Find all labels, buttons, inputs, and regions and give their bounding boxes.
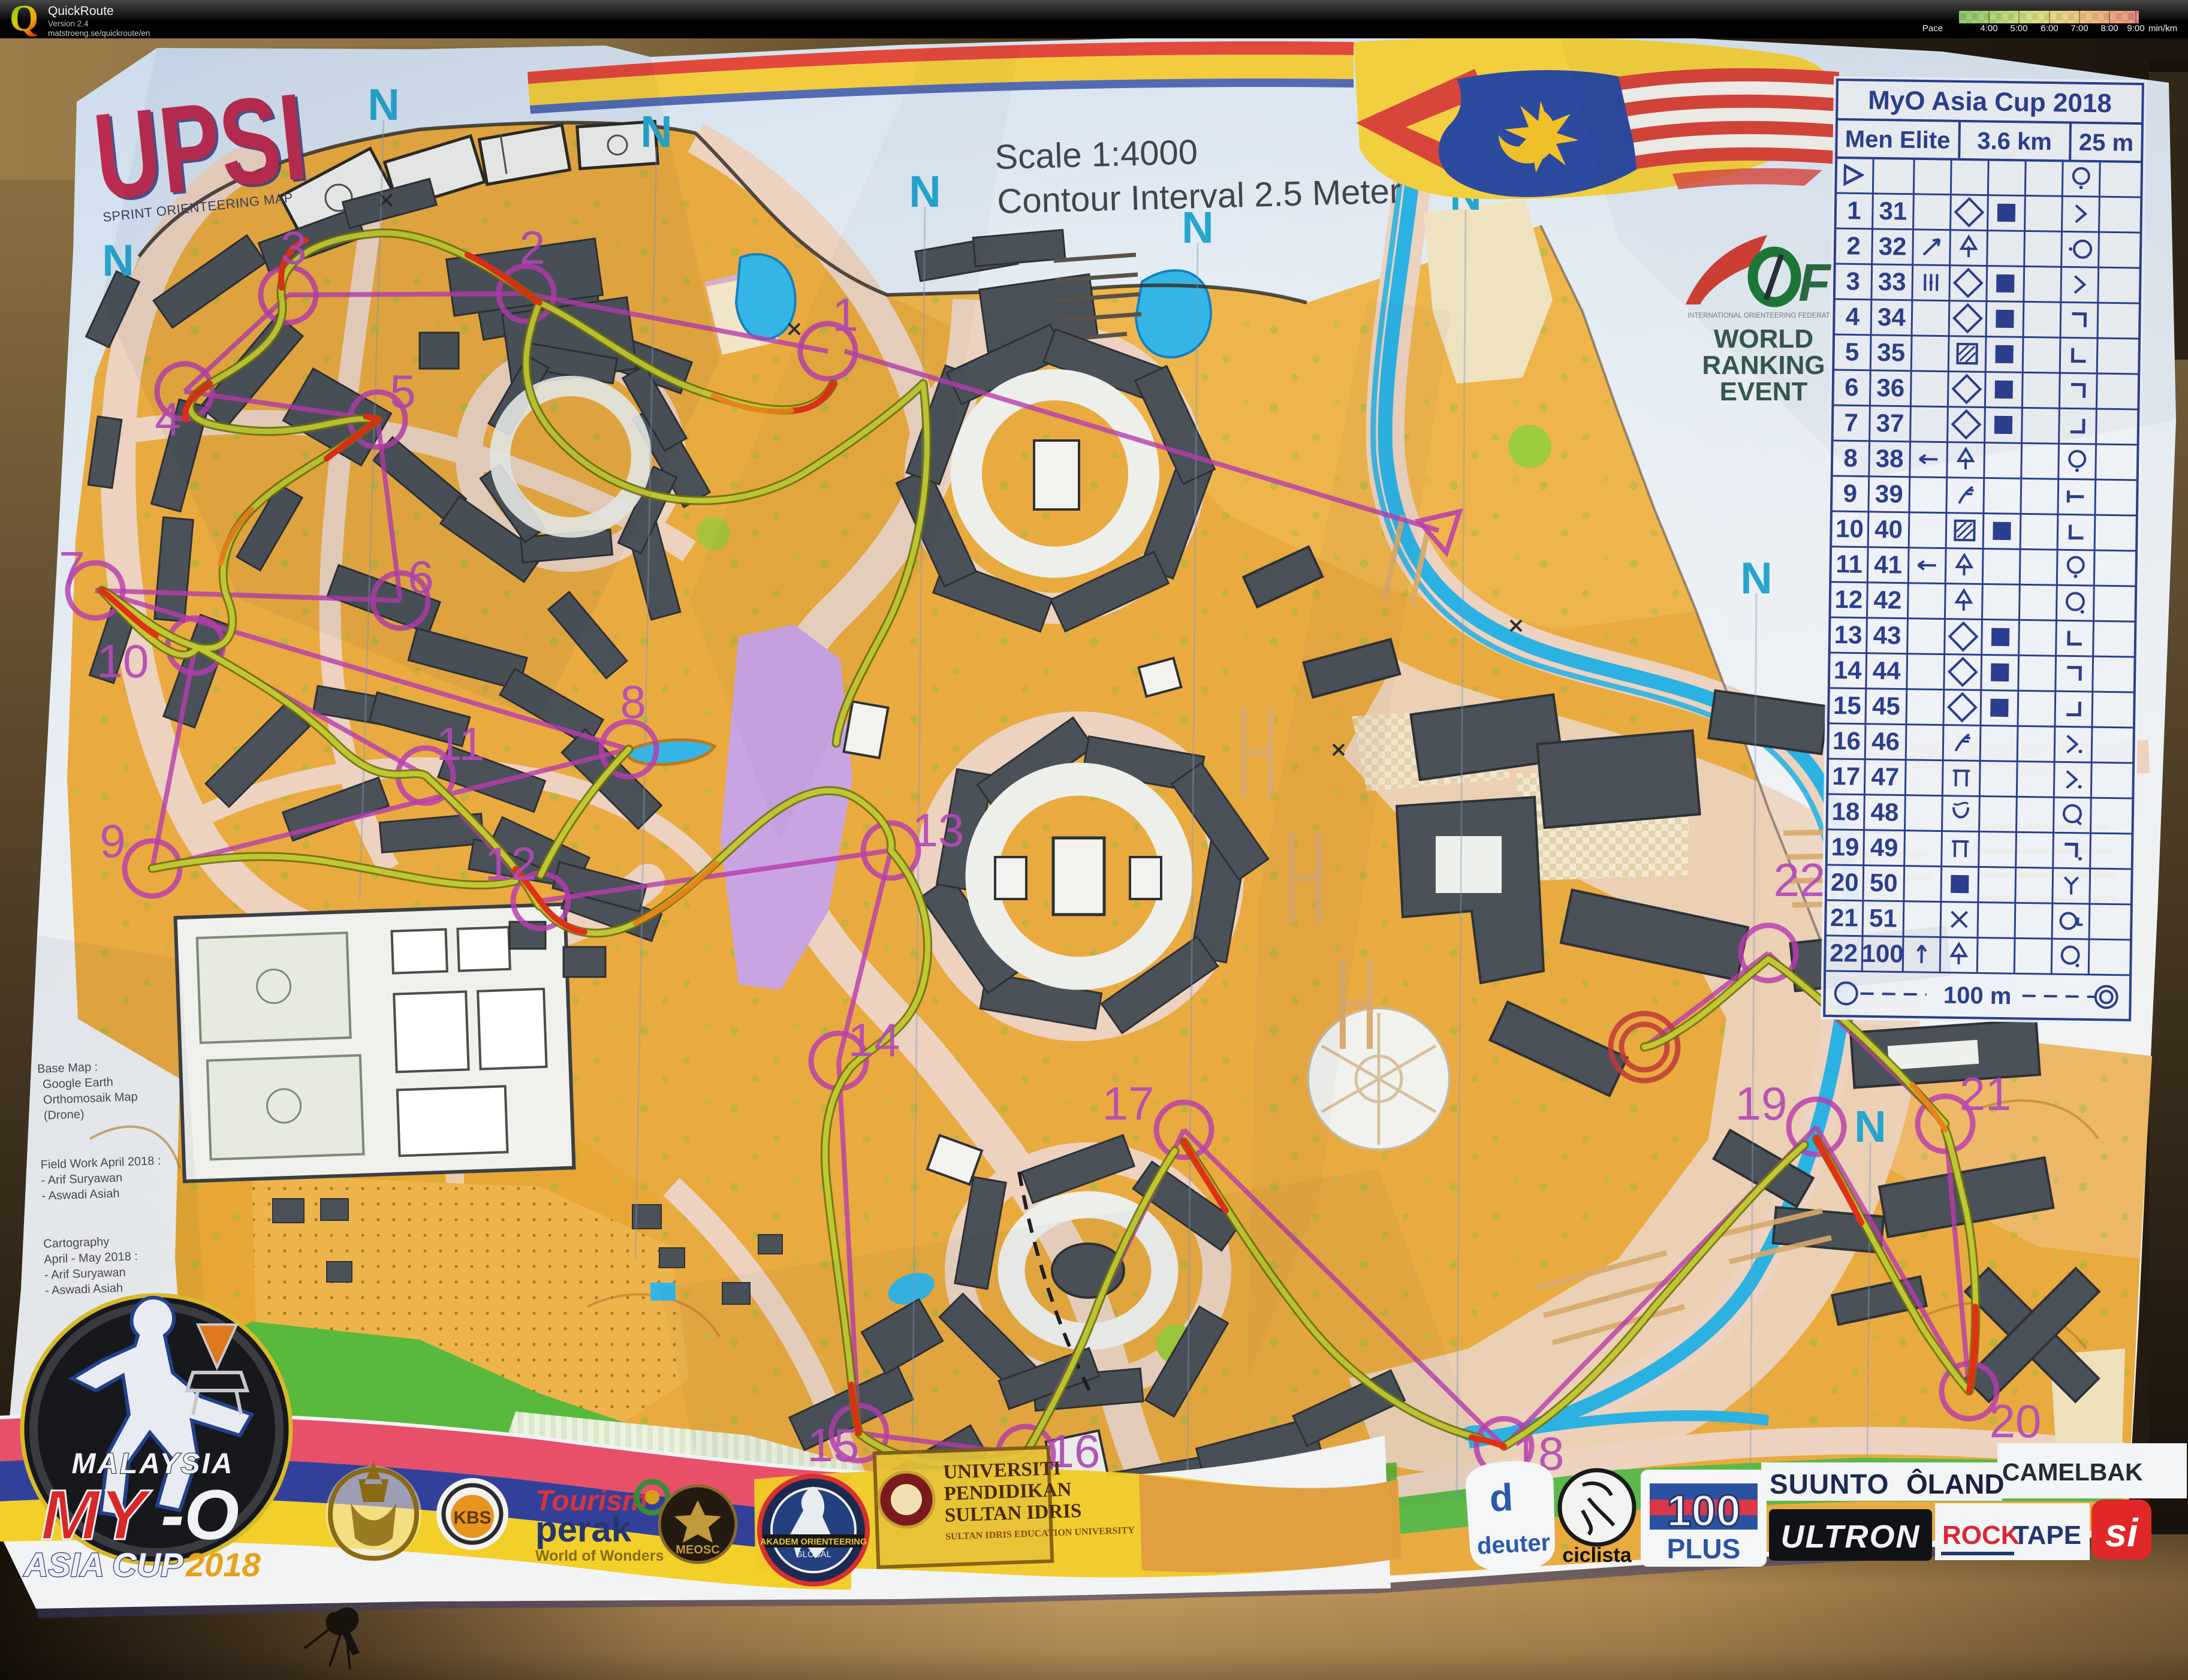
svg-text:GLOBAL: GLOBAL (795, 1549, 831, 1560)
svg-text:100: 100 (1861, 939, 1904, 968)
svg-text:13: 13 (912, 804, 965, 856)
svg-text:20: 20 (1990, 1395, 2042, 1447)
svg-text:11: 11 (1836, 550, 1862, 578)
svg-text:matstroeng.se/quickroute/en: matstroeng.se/quickroute/en (48, 29, 150, 38)
svg-text:21: 21 (1830, 903, 1858, 932)
svg-text:19: 19 (1735, 1077, 1788, 1130)
svg-text:World of Wonders: World of Wonders (535, 1548, 664, 1564)
svg-text:49: 49 (1870, 833, 1898, 862)
svg-text:ROCK: ROCK (1942, 1521, 2020, 1550)
svg-text:22: 22 (1830, 939, 1858, 967)
svg-text:KBS: KBS (453, 1508, 491, 1528)
svg-text:41: 41 (1874, 550, 1902, 579)
svg-text:9: 9 (1843, 479, 1857, 507)
svg-text:Q: Q (10, 0, 38, 39)
svg-text:min/km: min/km (2148, 23, 2177, 34)
svg-text:2018: 2018 (185, 1546, 261, 1584)
svg-text:TAPE: TAPE (2013, 1521, 2081, 1550)
svg-text:N: N (1854, 1102, 1886, 1151)
svg-text:39: 39 (1875, 479, 1903, 508)
svg-text:10: 10 (97, 635, 149, 687)
svg-text:MEOSC: MEOSC (676, 1543, 719, 1557)
svg-text:8:00: 8:00 (2100, 23, 2118, 34)
svg-text:46: 46 (1871, 727, 1900, 756)
svg-text:MY: MY (41, 1476, 152, 1555)
svg-text:8: 8 (620, 675, 646, 728)
svg-text:21: 21 (1960, 1067, 2012, 1120)
svg-text:4:00: 4:00 (1980, 23, 1997, 34)
svg-text:100: 100 (1666, 1486, 1740, 1536)
svg-text:51: 51 (1869, 904, 1897, 933)
svg-text:47: 47 (1871, 762, 1899, 791)
svg-text:AKADEM ORIENTEERING: AKADEM ORIENTEERING (760, 1537, 867, 1547)
svg-text:7:00: 7:00 (2071, 23, 2088, 34)
svg-text:Scale 1:4000: Scale 1:4000 (994, 132, 1198, 177)
svg-text:9:00: 9:00 (2127, 23, 2144, 34)
svg-text:48: 48 (1870, 798, 1898, 827)
svg-text:ULTRON: ULTRON (1781, 1519, 1921, 1555)
svg-text:9: 9 (100, 815, 125, 867)
svg-text:16: 16 (1833, 726, 1861, 755)
svg-text:6:00: 6:00 (2041, 23, 2058, 34)
svg-text:20: 20 (1831, 868, 1859, 897)
svg-text:10: 10 (1836, 514, 1864, 543)
svg-text:N: N (1740, 553, 1772, 603)
svg-text:7: 7 (59, 542, 85, 595)
svg-text:N: N (1182, 203, 1213, 252)
svg-text:ÔLAND: ÔLAND (1906, 1468, 2005, 1500)
svg-text:SUUNTO: SUUNTO (1770, 1468, 1889, 1500)
svg-text:42: 42 (1873, 586, 1901, 614)
svg-text:-O: -O (161, 1476, 239, 1555)
svg-text:19: 19 (1831, 833, 1859, 861)
svg-text:22: 22 (1774, 853, 1826, 906)
svg-text:45: 45 (1872, 692, 1900, 720)
svg-text:18: 18 (1831, 797, 1860, 826)
svg-text:Version 2.4: Version 2.4 (48, 19, 89, 28)
svg-text:QuickRoute: QuickRoute (48, 4, 114, 18)
svg-text:PLUS: PLUS (1667, 1533, 1741, 1564)
svg-text:ASIA CUP: ASIA CUP (23, 1546, 183, 1584)
svg-text:CAMELBAK: CAMELBAK (2002, 1458, 2143, 1486)
svg-text:44: 44 (1873, 656, 1901, 685)
svg-text:ciclista: ciclista (1562, 1544, 1632, 1567)
svg-text:perak: perak (535, 1509, 632, 1549)
svg-text:deuter: deuter (1476, 1530, 1551, 1560)
svg-text:14: 14 (1834, 656, 1862, 684)
svg-text:5:00: 5:00 (2010, 23, 2027, 34)
svg-text:14: 14 (848, 1014, 900, 1066)
svg-text:12: 12 (1834, 585, 1862, 614)
svg-text:40: 40 (1874, 515, 1903, 544)
svg-text:17: 17 (1832, 762, 1860, 791)
svg-text:d: d (1488, 1476, 1514, 1520)
svg-text:13: 13 (1834, 620, 1862, 649)
svg-text:100 m: 100 m (1943, 982, 2012, 1010)
svg-text:si: si (2105, 1510, 2139, 1555)
svg-text:Pace: Pace (1922, 23, 1943, 34)
svg-text:17: 17 (1102, 1077, 1155, 1130)
svg-text:12: 12 (485, 837, 537, 890)
svg-text:11: 11 (436, 717, 485, 770)
svg-text:43: 43 (1873, 621, 1901, 650)
svg-text:15: 15 (1833, 691, 1861, 720)
svg-text:50: 50 (1870, 868, 1898, 897)
